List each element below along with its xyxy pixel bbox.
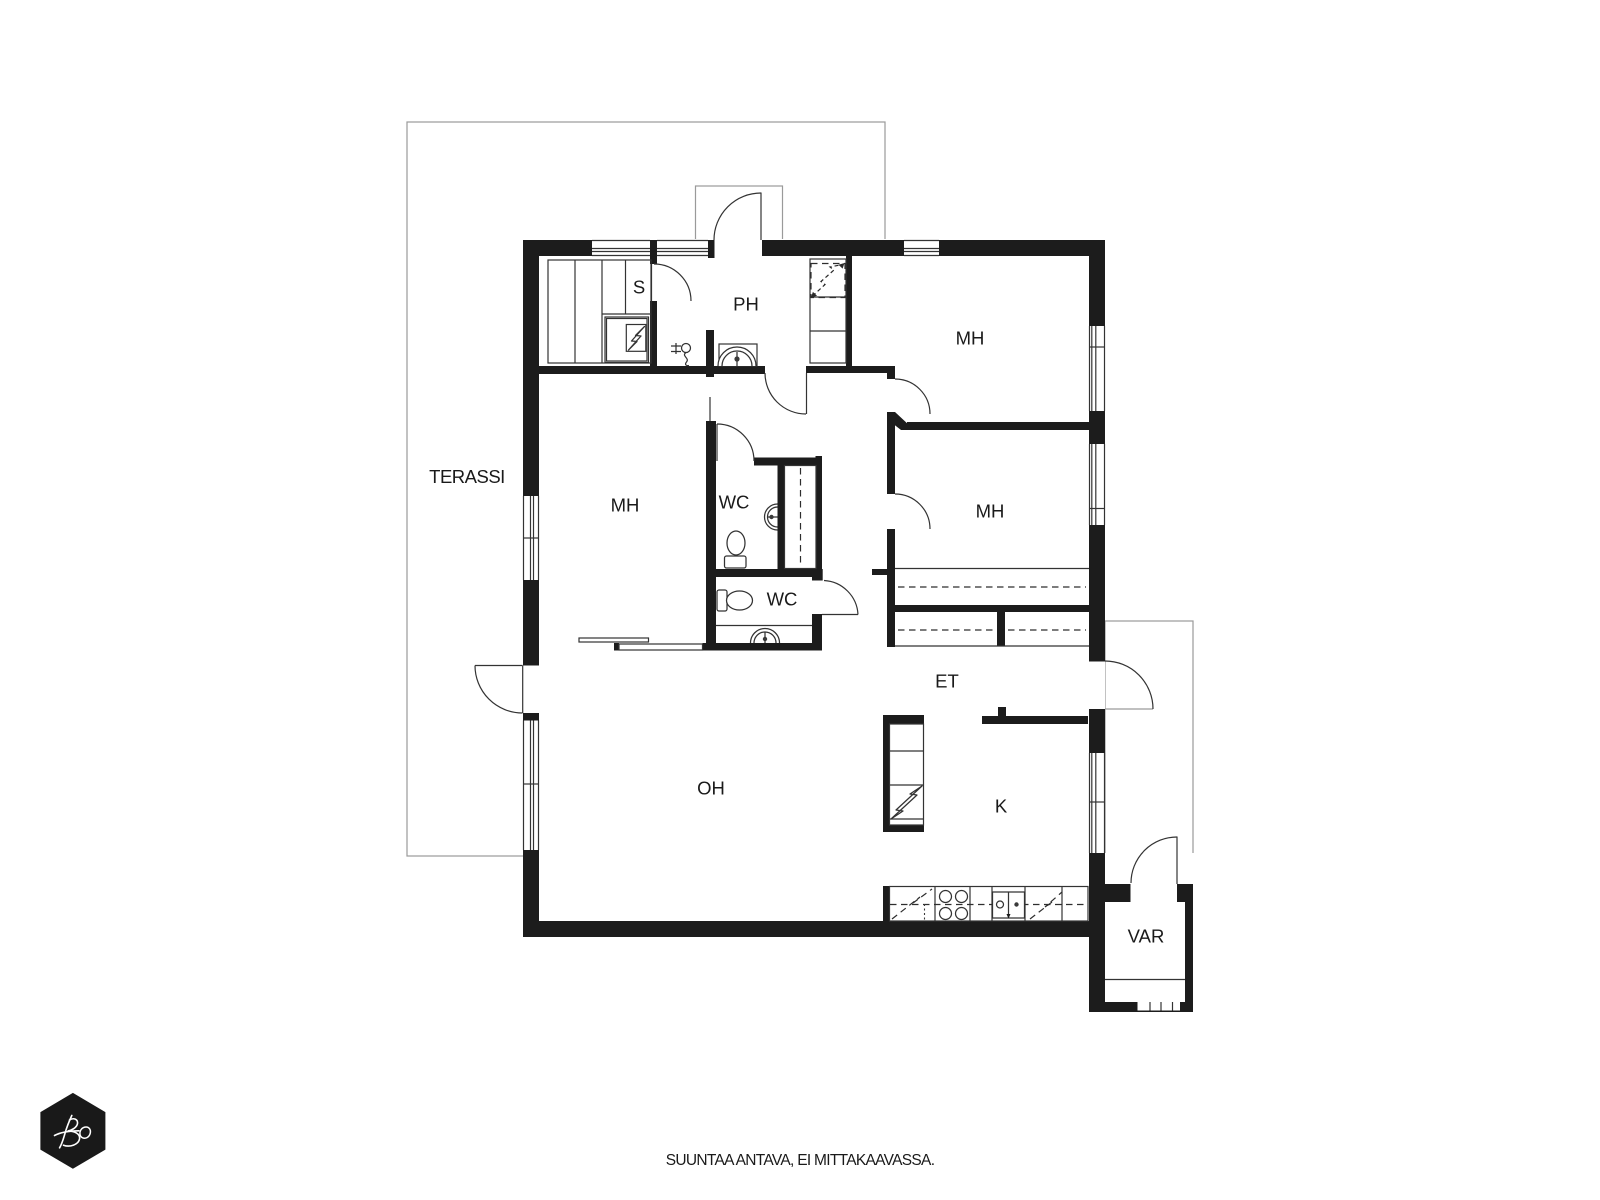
svg-text:S: S	[633, 277, 645, 298]
svg-text:MH: MH	[611, 495, 640, 516]
svg-text:ET: ET	[935, 671, 959, 692]
svg-text:OH: OH	[697, 778, 725, 799]
svg-text:MH: MH	[956, 328, 985, 349]
svg-text:WC: WC	[767, 589, 798, 610]
svg-text:PH: PH	[733, 294, 759, 315]
svg-text:TERASSI: TERASSI	[429, 466, 505, 487]
svg-text:K: K	[995, 796, 1008, 817]
svg-text:VAR: VAR	[1128, 926, 1165, 947]
svg-text:MH: MH	[976, 501, 1005, 522]
svg-text:WC: WC	[719, 492, 750, 513]
svg-text:SUUNTAA ANTAVA, EI MITTAKAAVAS: SUUNTAA ANTAVA, EI MITTAKAAVASSA.	[666, 1152, 935, 1169]
